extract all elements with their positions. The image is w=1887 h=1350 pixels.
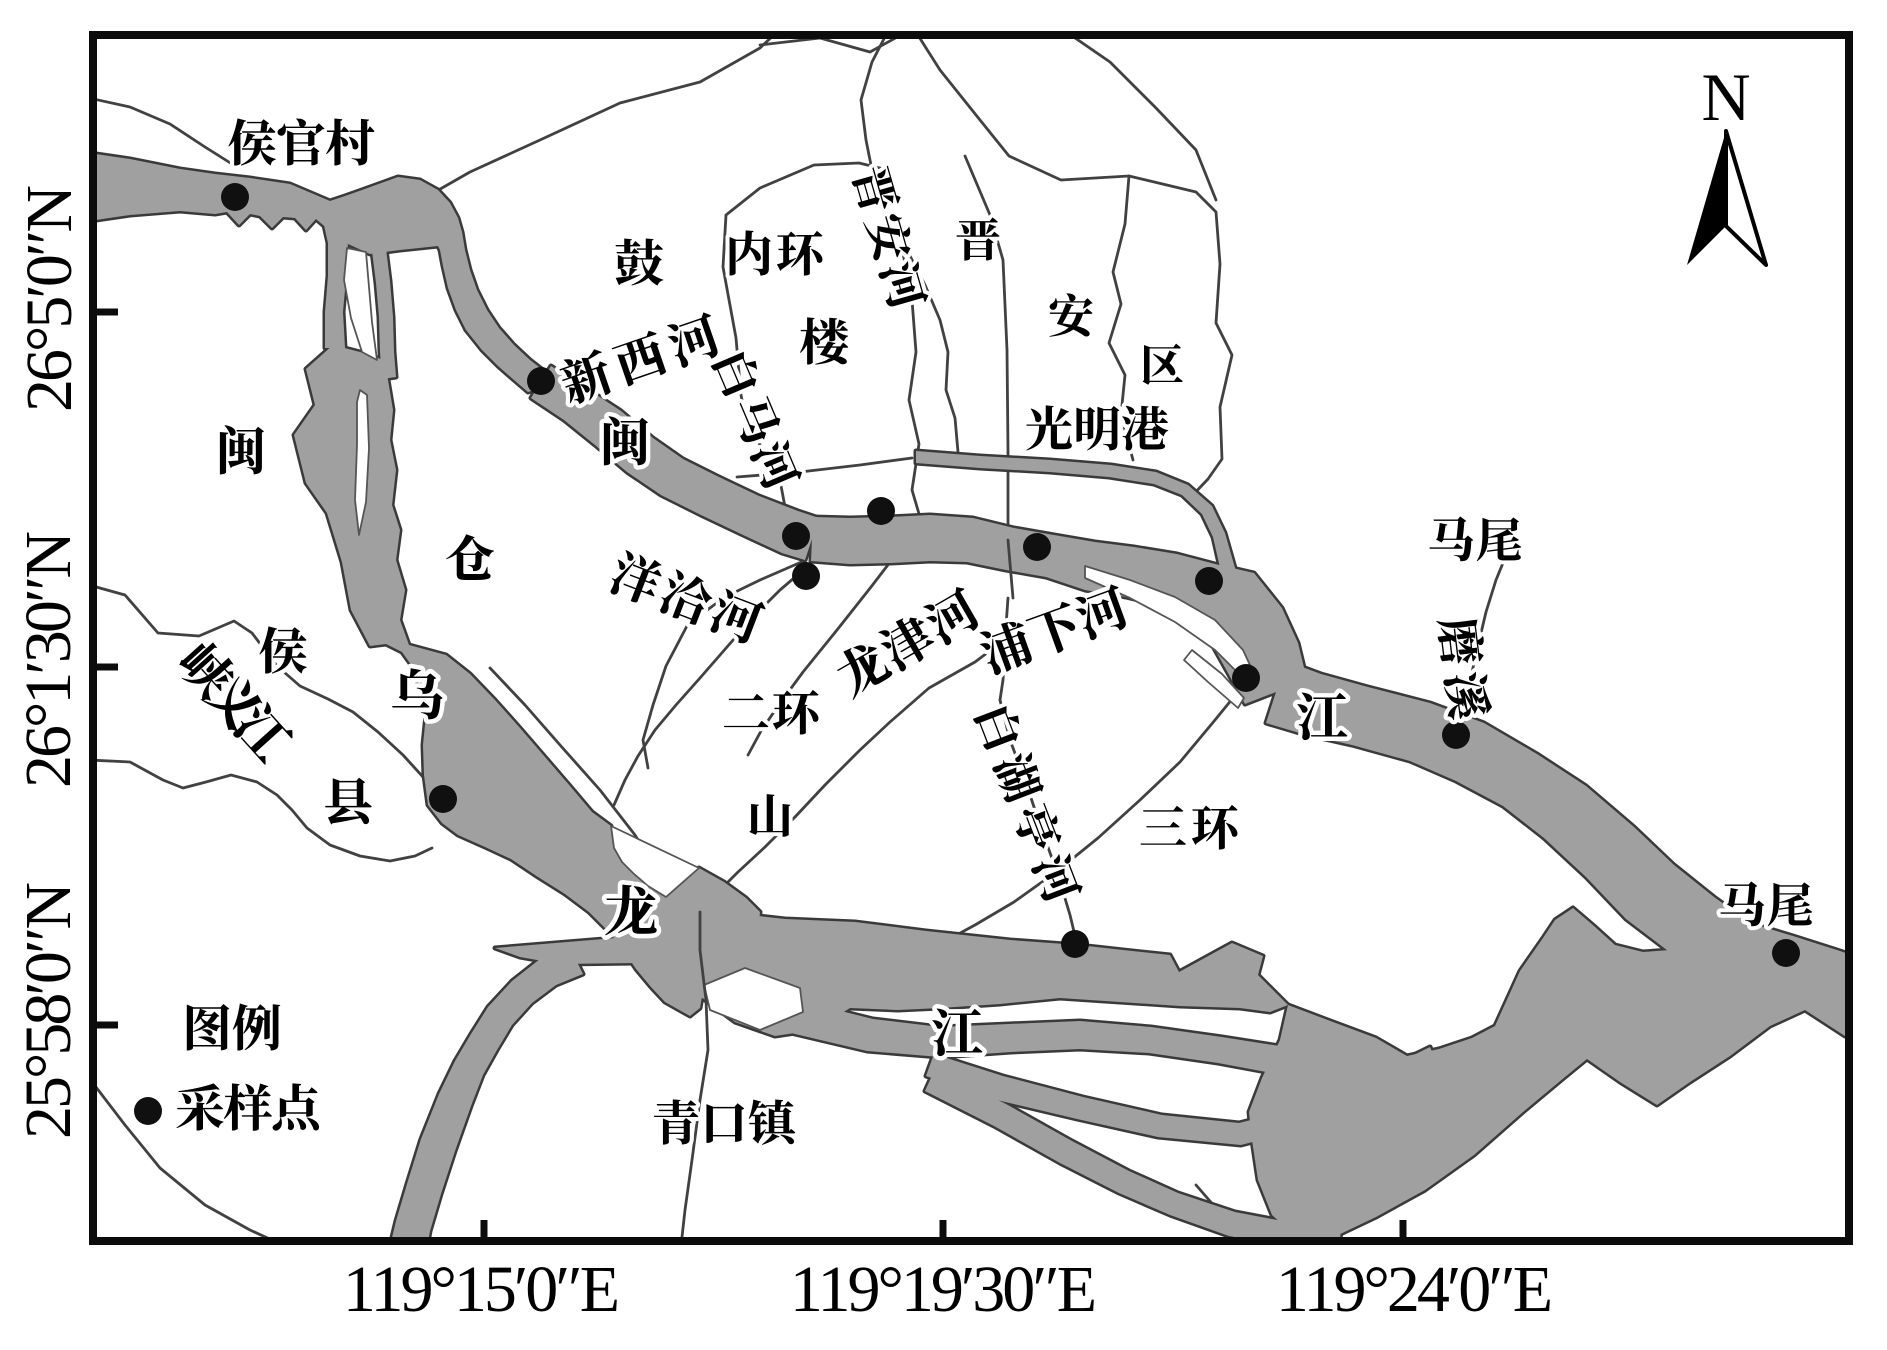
svg-text:N: N xyxy=(1701,59,1750,135)
svg-text:25°58′0″N: 25°58′0″N xyxy=(12,883,85,1139)
svg-text:119°19′30″E: 119°19′30″E xyxy=(790,1253,1095,1326)
svg-text:119°15′0″E: 119°15′0″E xyxy=(343,1253,618,1326)
svg-text:119°24′0″E: 119°24′0″E xyxy=(1276,1253,1551,1326)
svg-text:26°1′30″N: 26°1′30″N xyxy=(12,532,85,788)
svg-text:26°5′0″N: 26°5′0″N xyxy=(13,186,86,412)
